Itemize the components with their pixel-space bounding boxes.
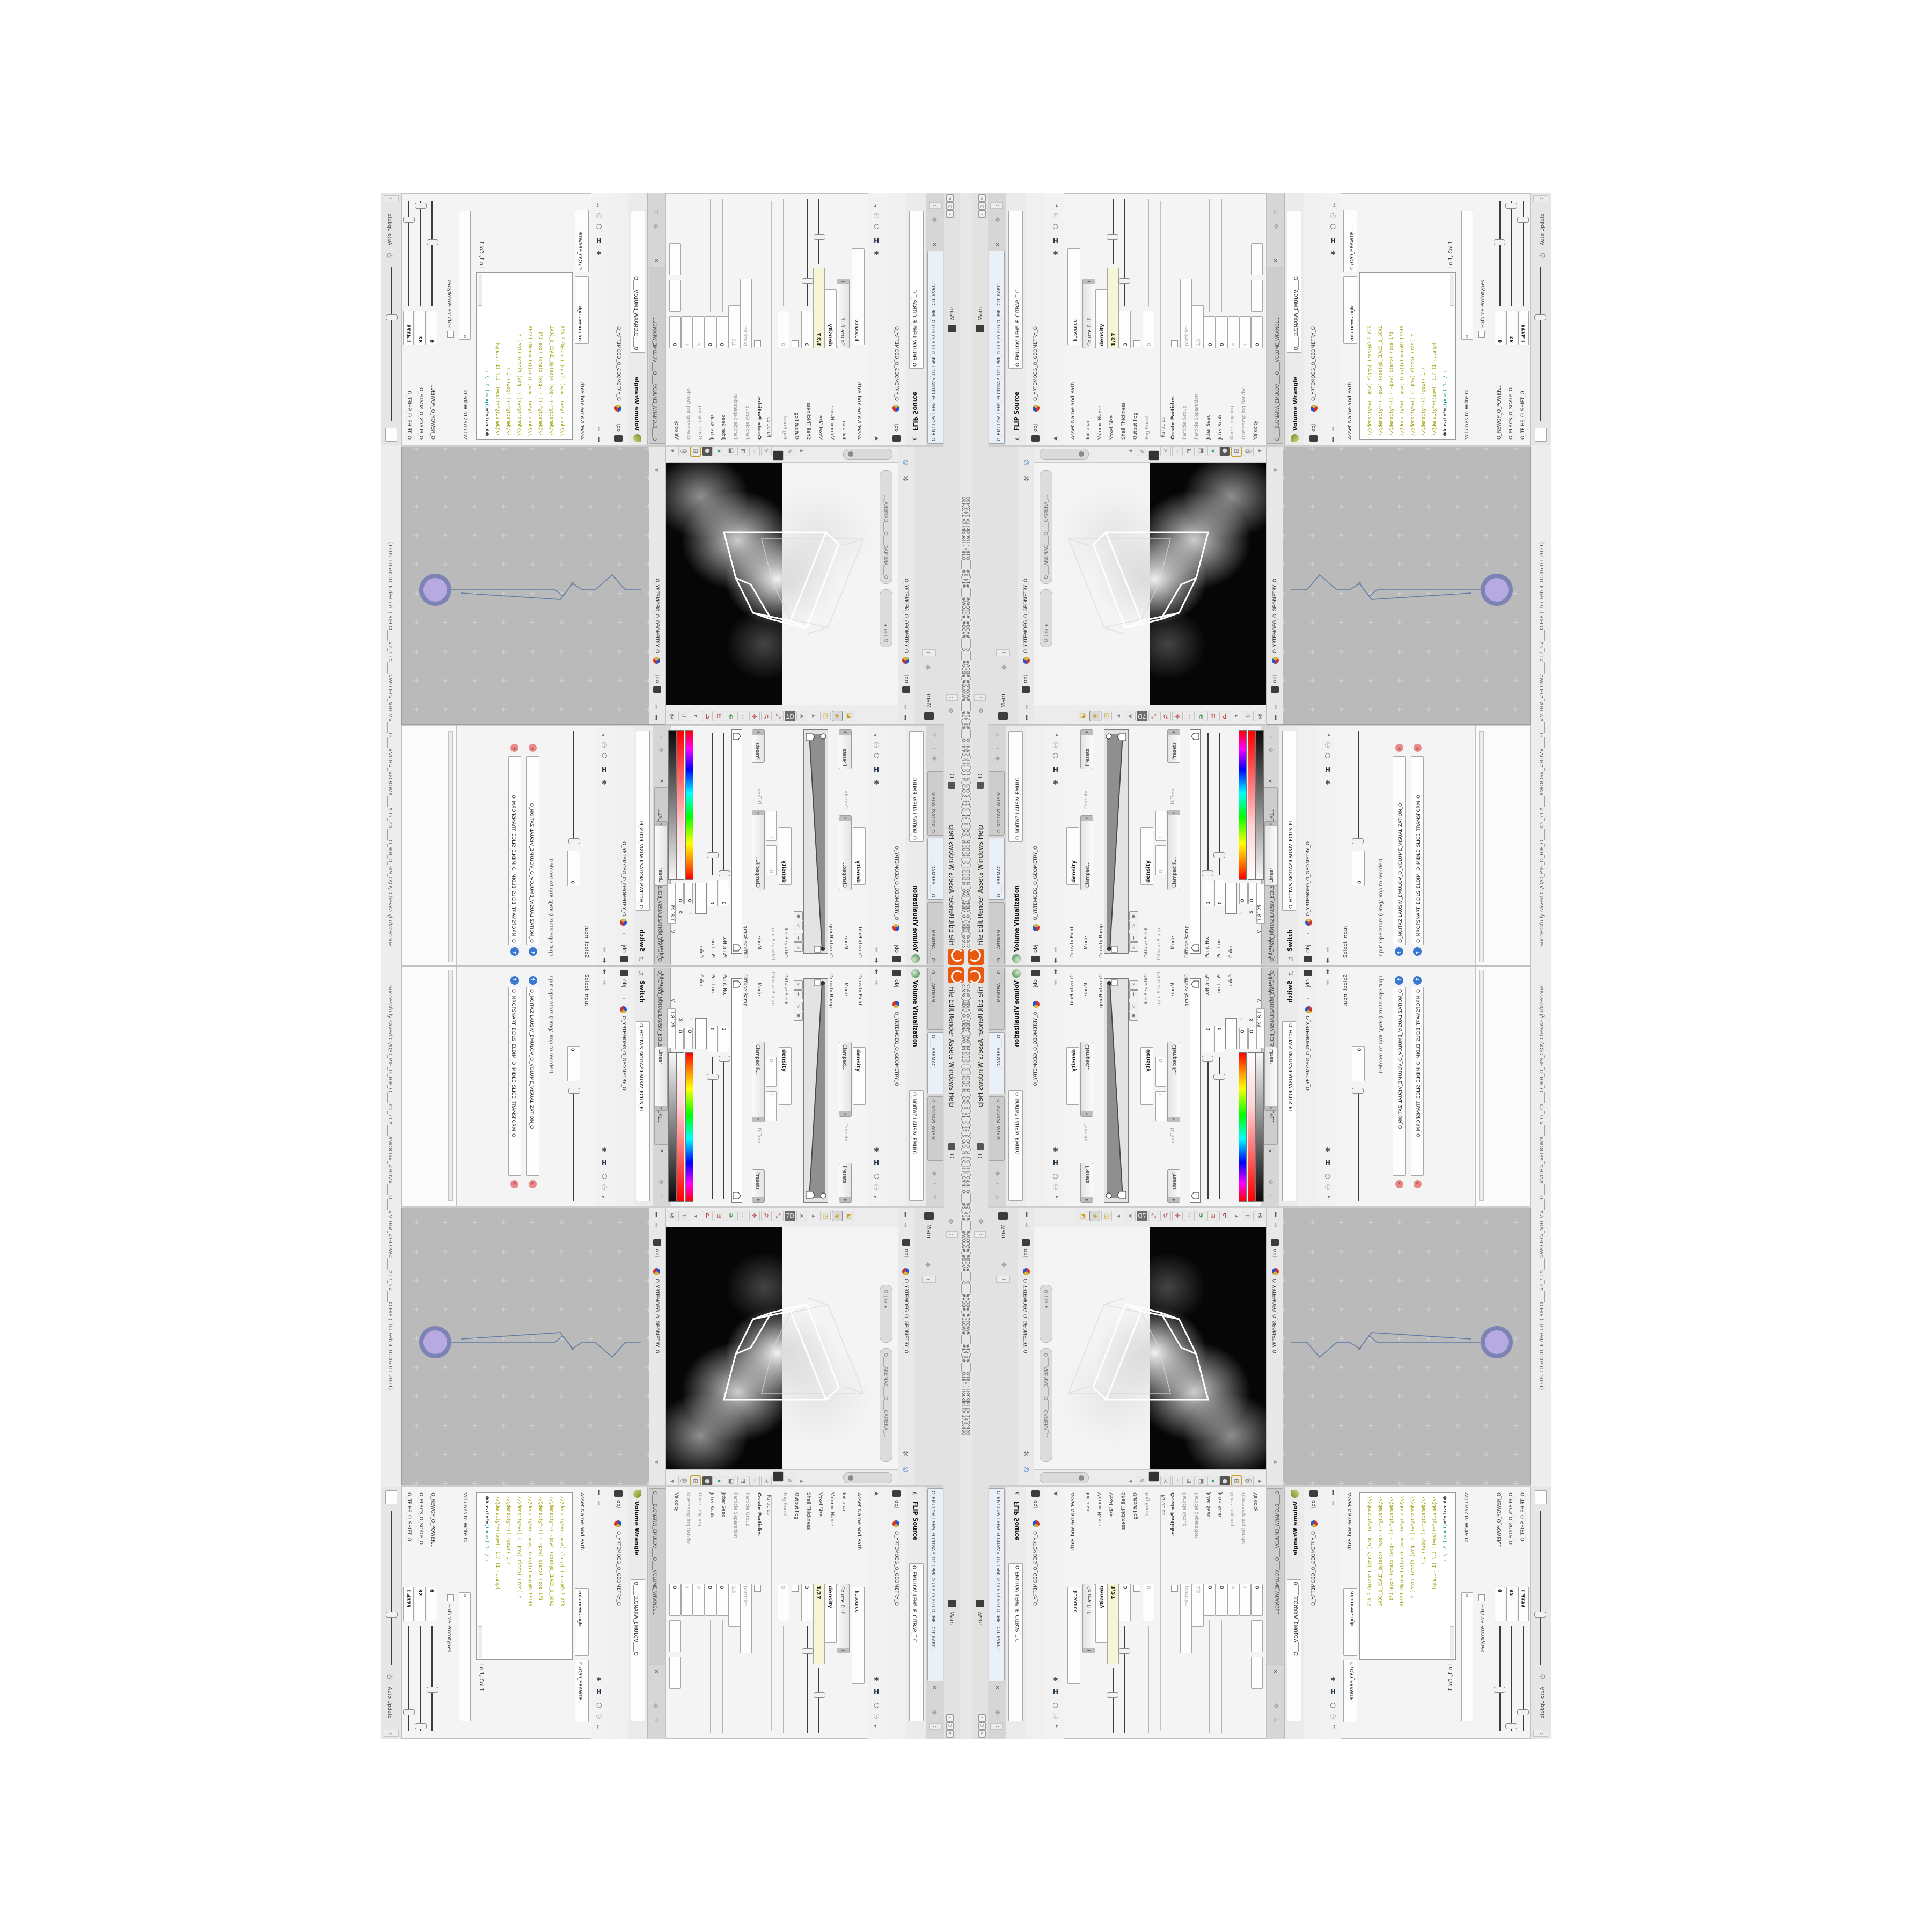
- scale-field[interactable]: 32: [415, 1587, 426, 1621]
- refresh-icon[interactable]: ⟳: [387, 1674, 393, 1681]
- select-input-slider[interactable]: [573, 1089, 574, 1201]
- diffuse-range-max[interactable]: 1: [766, 811, 777, 841]
- volumes-field[interactable]: *: [459, 211, 471, 340]
- scale-slider[interactable]: [1511, 1626, 1512, 1731]
- breadcrumb-path[interactable]: O_YRTEMOEG_O_GEOMETRY_O: [894, 731, 899, 920]
- shift-thumb[interactable]: [1517, 1709, 1529, 1715]
- code-vscroll[interactable]: [1450, 274, 1454, 306]
- down-arrow-icon[interactable]: ⬇: [1053, 946, 1058, 953]
- fog-boost-field[interactable]: 0: [778, 311, 789, 348]
- tripod-icon[interactable]: ⋏: [761, 1476, 772, 1487]
- pane-expand-icon[interactable]: ✥: [653, 1703, 658, 1709]
- ramp-add-icon[interactable]: +: [794, 933, 803, 942]
- breadcrumb-path[interactable]: O_YRTEMOEG_O_GEOMETRY_O: [894, 1012, 899, 1201]
- gear-icon[interactable]: ✱: [1053, 1147, 1058, 1153]
- breadcrumb-obj[interactable]: obj: [894, 417, 899, 432]
- velocity-field[interactable]: 0: [669, 1584, 681, 1616]
- auto-update-spinner[interactable]: ◂▸: [1533, 195, 1548, 202]
- switch-name-field[interactable]: O_HCTIWS_NOITAZILAUSIV_ECILS_EL: [636, 731, 650, 911]
- tab-mantra[interactable]: O____ARTNAM_...: [989, 902, 1005, 964]
- up-arrow-icon[interactable]: ⬆: [1330, 436, 1336, 443]
- info-icon[interactable]: ⓘ: [1053, 1185, 1058, 1191]
- pane-splitter[interactable]: ◂▸: [974, 1231, 986, 1238]
- desktop-layout-icon[interactable]: [977, 782, 984, 789]
- magnifier-icon[interactable]: ○: [1330, 1702, 1336, 1708]
- vex-code-editor[interactable]: //@density*=( -pow( clamp( (cos(@O_ELACS…: [476, 1492, 573, 1660]
- breadcrumb-obj[interactable]: obj: [1305, 936, 1311, 953]
- saturation-ramp[interactable]: [676, 730, 684, 880]
- breadcrumb-obj[interactable]: obj: [894, 936, 899, 953]
- playbar-thumb[interactable]: [1534, 1612, 1546, 1618]
- playbar-track[interactable]: [1540, 1511, 1541, 1665]
- diffuse-ramp-widget[interactable]: [1190, 978, 1201, 1203]
- pane-collapse-icon[interactable]: ◁: [660, 734, 663, 739]
- next-icon[interactable]: ▸: [1125, 445, 1136, 456]
- close-button[interactable]: ✕: [946, 194, 954, 202]
- up-arrow-icon[interactable]: ⬆: [903, 1211, 908, 1218]
- fog-boost-slider[interactable]: [1148, 1626, 1149, 1733]
- velocity-field[interactable]: 0: [1251, 1584, 1263, 1616]
- breadcrumb-obj[interactable]: obj: [1311, 1500, 1316, 1515]
- prev-icon[interactable]: ◂: [1231, 710, 1242, 721]
- magnifier-icon[interactable]: ○: [874, 753, 879, 759]
- value-ramp[interactable]: [1256, 1052, 1264, 1202]
- interpolation-dropdown[interactable]: Linear◂▸: [1264, 1046, 1277, 1111]
- pane-splitter[interactable]: ◂▸: [922, 1276, 936, 1283]
- shell-thickness-slider[interactable]: [807, 199, 808, 306]
- view-tool-button[interactable]: 7D: [1137, 711, 1147, 721]
- wrangle-name-field[interactable]: O____ELGNARW_EMULOV____O: [1287, 211, 1301, 353]
- anvil-icon[interactable]: ⚒: [1023, 1451, 1029, 1457]
- tab-camera[interactable]: O____AREMAC_...: [927, 838, 943, 900]
- flip-name-field[interactable]: O_EMULOV_LEH5_ELCITRAP_TICI: [909, 1563, 924, 1721]
- playbar-track[interactable]: [391, 1511, 392, 1665]
- viz-name-field[interactable]: O_NOITAZILAUSIV_EMULO: [1008, 1090, 1023, 1201]
- auto-update-label[interactable]: Auto Update: [1540, 1687, 1546, 1730]
- auto-update-label[interactable]: Auto Update: [386, 202, 392, 245]
- wrangle-pane-tab[interactable]: O____ELGNARW_EMULOV____O____VOLUME_WRANG…: [1267, 1488, 1283, 1665]
- ramp-delete-icon[interactable]: ✕: [794, 942, 803, 952]
- view-ortho-pill[interactable]: Ortho ▾: [1040, 1285, 1052, 1343]
- rotate-tool-icon[interactable]: ↻: [761, 711, 772, 721]
- menu-items[interactable]: File Edit Render Assets Windows Help: [948, 986, 955, 1137]
- switch-name-field[interactable]: O_HCTIWS_NOITAZILAUSIV_ECILS_EL: [1282, 731, 1296, 911]
- pose-icon[interactable]: Ꝑ: [702, 711, 713, 721]
- houdini-h-icon[interactable]: H: [1330, 1689, 1336, 1695]
- value-ramp[interactable]: [668, 730, 676, 880]
- select-objects-icon[interactable]: ✇: [1255, 711, 1265, 721]
- network-path[interactable]: O_YRTEMOEG_O_GEOMETRY_O: [1272, 1279, 1278, 1440]
- shade-selected-icon[interactable]: ◈: [1089, 711, 1100, 721]
- playbar-frame-field[interactable]: [385, 428, 397, 442]
- black-square-icon[interactable]: [773, 450, 784, 461]
- diffuse-presets-button[interactable]: Presets◂▸: [752, 729, 765, 763]
- code-vscroll[interactable]: [1450, 1626, 1454, 1658]
- eye-icon[interactable]: 👁: [1243, 445, 1254, 456]
- asset-field-2[interactable]: C:/O/O_ERAWTF...: [1343, 210, 1357, 272]
- jitter-scale-slider[interactable]: [710, 199, 711, 312]
- ramp-expand-icon[interactable]: ⊞: [794, 911, 803, 920]
- input-operator-row[interactable]: ➜ O_NOITAZILAUSIV_EMULOV_O_VOLUME_VISUAL…: [525, 976, 541, 1201]
- cursor-icon[interactable]: ➤: [1053, 435, 1058, 442]
- down-arrow-icon[interactable]: ⬇: [654, 704, 659, 710]
- fog-boost-slider[interactable]: [783, 199, 784, 306]
- prev-icon[interactable]: ◂: [1231, 1211, 1242, 1222]
- viewport-toolbar-bottom[interactable]: ◂👁⊞●➤◧⚃⁘⋏✎▸: [1034, 447, 1266, 463]
- gear-icon[interactable]: ✱: [874, 250, 879, 256]
- diffuse-range-max[interactable]: 1: [1155, 811, 1166, 841]
- create-particles-checkbox[interactable]: [1171, 1585, 1178, 1592]
- s-field[interactable]: 0: [1248, 883, 1257, 904]
- empty-pane-scrollbar[interactable]: [1479, 970, 1484, 1201]
- ramp-expand-icon[interactable]: ⊞: [1129, 1012, 1138, 1021]
- help-icon[interactable]: ?: [874, 201, 876, 207]
- jitter-seed-slider[interactable]: [1209, 199, 1210, 312]
- move-tool-icon[interactable]: ✥: [1172, 1211, 1183, 1221]
- ramp-add-icon[interactable]: +: [794, 990, 803, 999]
- voxel-size-field[interactable]: 1/27: [1107, 1584, 1119, 1664]
- magnifier-icon[interactable]: ○: [874, 1702, 879, 1708]
- up-arrow-icon[interactable]: ⬆: [874, 957, 879, 963]
- houdini-h-icon[interactable]: H: [874, 1160, 879, 1166]
- breadcrumb-path[interactable]: O_YRTEMOEG_O_GEOMETRY_O: [1033, 1012, 1038, 1201]
- s-field[interactable]: 0: [675, 1028, 684, 1049]
- info-icon[interactable]: ⓘ: [1053, 1715, 1058, 1720]
- shade-selected-icon[interactable]: ◈: [832, 1211, 843, 1221]
- breadcrumb-path[interactable]: O_YRTEMOEG_O_GEOMETRY_O: [1023, 1279, 1029, 1440]
- power-thumb[interactable]: [427, 239, 438, 245]
- prev-icon[interactable]: ◂: [667, 445, 677, 456]
- breadcrumb-obj[interactable]: obj: [616, 1500, 621, 1515]
- network-canvas[interactable]: [402, 446, 649, 724]
- pane-expand-icon[interactable]: ✥: [1001, 664, 1007, 670]
- switch-name-field[interactable]: O_HCTIWS_NOITAZILAUSIV_ECILS_EL: [1282, 1021, 1296, 1201]
- position-field[interactable]: 0: [707, 1026, 718, 1052]
- wrangle-name-field[interactable]: O____ELGNARW_EMULOV____O: [631, 211, 645, 353]
- h-field[interactable]: 0: [1239, 883, 1248, 904]
- jitter-seed-slider[interactable]: [722, 199, 723, 312]
- houdini-h-icon[interactable]: H: [602, 766, 607, 772]
- minimize-button[interactable]: –: [946, 1714, 954, 1722]
- info-icon[interactable]: ⓘ: [596, 1715, 602, 1720]
- select-input-field[interactable]: 0: [567, 851, 580, 886]
- create-particles-checkbox[interactable]: [754, 1585, 761, 1592]
- close-icon[interactable]: ✕: [1268, 1149, 1272, 1154]
- breadcrumb-obj[interactable]: obj: [1033, 936, 1038, 953]
- quadview-icon[interactable]: ⊞: [690, 446, 701, 457]
- breadcrumb-path[interactable]: O_YRTEMOEG_O_GEOMETRY_O: [1033, 731, 1038, 920]
- cursor-icon[interactable]: ➤: [1053, 1490, 1058, 1497]
- mode2-dropdown[interactable]: Clamped R...◂▸: [752, 810, 765, 890]
- density-ramp-widget[interactable]: [1104, 978, 1129, 1203]
- ramp-flip-icon[interactable]: ▽: [1129, 921, 1138, 930]
- info-icon[interactable]: ⓘ: [874, 212, 879, 217]
- magnifier-icon[interactable]: ○: [1053, 224, 1058, 230]
- power-thumb[interactable]: [1494, 1687, 1505, 1693]
- select-input-field[interactable]: 0: [1352, 1046, 1365, 1081]
- volumes-field[interactable]: *: [1461, 1592, 1473, 1721]
- help-icon[interactable]: ?: [602, 730, 604, 736]
- down-arrow-icon[interactable]: ⬇: [874, 946, 879, 953]
- down-arrow-icon[interactable]: ⬇: [596, 426, 602, 432]
- dice-icon[interactable]: ⚃: [737, 445, 748, 456]
- pane-splitter[interactable]: ◂▸: [922, 649, 936, 656]
- oversampling-field[interactable]: 2: [1227, 1584, 1239, 1616]
- help-icon[interactable]: ?: [1056, 730, 1058, 736]
- vex-code-editor[interactable]: //@density*=( -pow( clamp( (cos(@O_ELACS…: [1359, 1492, 1456, 1660]
- up-arrow-icon[interactable]: ⬆: [602, 969, 607, 975]
- shell-thickness-field[interactable]: 3: [1119, 1584, 1131, 1621]
- pane-collapse-icon[interactable]: ◁: [996, 1195, 1000, 1200]
- dark-toggle-icon[interactable]: ●: [702, 445, 713, 456]
- oversampling-bandwidth-field[interactable]: 1: [681, 316, 693, 348]
- diffuse-ramp-widget[interactable]: [1190, 729, 1201, 954]
- density-ramp-widget[interactable]: [803, 978, 828, 1203]
- axis-icon[interactable]: Ψ: [1196, 1211, 1206, 1221]
- up-arrow-icon[interactable]: ⬆: [1325, 969, 1330, 975]
- main-desktop-tab[interactable]: Main: [948, 1611, 955, 1641]
- viewport-toolbar-top[interactable]: ✇▱◂Ꝑ⊞Ψ⌇✥↻⤢7D➤▸◳◈◩: [1034, 706, 1266, 722]
- pane-expand-icon[interactable]: ✥: [658, 747, 664, 753]
- dot-grid-icon[interactable]: ⁘: [1172, 1476, 1183, 1487]
- density-presets-button[interactable]: Presets◂▸: [839, 729, 852, 769]
- pose-icon[interactable]: Ꝑ: [1219, 711, 1230, 721]
- diffuse-range-max[interactable]: 1: [766, 1091, 777, 1121]
- flip-asset-field[interactable]: flipsource: [852, 1587, 865, 1684]
- down-arrow-icon[interactable]: ⬇: [1273, 1222, 1278, 1228]
- particle-group-field[interactable]: particles: [740, 279, 752, 348]
- switch-name-field[interactable]: O_HCTIWS_NOITAZILAUSIV_ECILS_EL: [636, 1021, 650, 1201]
- velocity-field-3[interactable]: [669, 1657, 681, 1689]
- help-icon[interactable]: ?: [1328, 730, 1330, 736]
- scale-slider[interactable]: [420, 201, 421, 306]
- view-ortho-pill[interactable]: Ortho ▾: [1040, 589, 1052, 647]
- voxel-size-thumb[interactable]: [814, 234, 825, 240]
- network-path[interactable]: O_YRTEMOEG_O_GEOMETRY_O: [654, 492, 660, 653]
- magnifier-icon[interactable]: ○: [1053, 753, 1058, 759]
- point-no-field[interactable]: 1: [719, 1026, 729, 1052]
- s-field[interactable]: 0: [675, 883, 684, 904]
- breadcrumb-path[interactable]: O_YRTEMOEG_O_GEOMETRY_O: [894, 1531, 899, 1721]
- axis-icon[interactable]: Ψ: [726, 1211, 736, 1221]
- pane-expand-icon[interactable]: ✥: [932, 1709, 937, 1716]
- position-thumb[interactable]: [707, 852, 719, 858]
- info-icon[interactable]: ⓘ: [1330, 1715, 1336, 1720]
- diffuse-range-min[interactable]: 0: [1155, 1057, 1166, 1087]
- scale-tool-icon[interactable]: ⤢: [1148, 711, 1159, 721]
- gear-icon[interactable]: ✱: [602, 779, 607, 785]
- network-path[interactable]: O_YRTEMOEG_O_GEOMETRY_O: [654, 1279, 660, 1440]
- asset-field-2[interactable]: C:/O/O_ERAWTF...: [1343, 1660, 1357, 1722]
- remove-icon[interactable]: ✕: [529, 1180, 537, 1188]
- split-view-icon[interactable]: ◧: [726, 445, 736, 456]
- playbar-frame-field[interactable]: [1535, 428, 1547, 442]
- pane-expand-icon[interactable]: ✥: [925, 1262, 931, 1268]
- info-icon[interactable]: ⓘ: [874, 741, 879, 747]
- shade-mode-icon[interactable]: ◳: [1101, 1211, 1112, 1221]
- help-icon[interactable]: ?: [874, 1196, 876, 1202]
- pose-icon[interactable]: Ꝑ: [702, 1211, 713, 1221]
- viewport-toolbar-bottom[interactable]: ◂👁⊞●➤◧⚃⁘⋏✎▸: [666, 447, 898, 463]
- snapshot-pill[interactable]: [1040, 1472, 1089, 1483]
- shade-mode-icon[interactable]: ◳: [820, 1211, 831, 1221]
- interpolation-dropdown[interactable]: Linear◂▸: [655, 1046, 668, 1111]
- up-arrow-icon[interactable]: ⬆: [596, 436, 602, 443]
- down-arrow-icon[interactable]: ⬇: [1325, 946, 1330, 953]
- diffuse-presets-button[interactable]: Presets◂▸: [1167, 1169, 1180, 1203]
- point-no-thumb[interactable]: [719, 1056, 730, 1062]
- breadcrumb-obj[interactable]: obj: [903, 1249, 909, 1264]
- menu-items[interactable]: File Edit Render Assets Windows Help: [948, 795, 955, 946]
- pane-splitter[interactable]: ◂▸: [929, 1723, 942, 1730]
- info-icon[interactable]: ⓘ: [874, 1715, 879, 1720]
- position-thumb[interactable]: [707, 1074, 719, 1080]
- voxel-size-thumb[interactable]: [1107, 234, 1118, 240]
- hue-ramp[interactable]: [1239, 1052, 1247, 1202]
- viz-name-field[interactable]: O_NOITAZILAUSIV_EMULO: [909, 731, 924, 842]
- axis-icon[interactable]: Ψ: [726, 711, 736, 721]
- voxel-size-thumb[interactable]: [814, 1692, 825, 1698]
- diffuse-field-value[interactable]: density: [779, 827, 792, 885]
- viewport-toolbar-top[interactable]: ✇▱◂Ꝑ⊞Ψ⌇✥↻⤢7D➤▸◳◈◩: [666, 1210, 898, 1226]
- breadcrumb-obj[interactable]: obj: [1272, 668, 1278, 683]
- reorder-icon[interactable]: ➜: [1395, 947, 1403, 956]
- interpolation-dropdown[interactable]: Linear◂▸: [1264, 821, 1277, 885]
- help-icon[interactable]: ?: [1333, 201, 1336, 207]
- scale-slider[interactable]: [420, 1626, 421, 1731]
- flip-name-field[interactable]: O_EMULOV_LEH5_ELCITRAP_TICI: [1008, 1563, 1023, 1721]
- close-icon[interactable]: ✕: [932, 241, 936, 246]
- dot-grid-icon[interactable]: ⁘: [749, 1476, 760, 1487]
- remove-icon[interactable]: ✕: [510, 744, 518, 752]
- anvil-icon[interactable]: ⚒: [1023, 475, 1029, 481]
- help-icon[interactable]: ?: [1056, 1725, 1058, 1731]
- empty-pane-scrollbar[interactable]: [448, 970, 453, 1201]
- tab-camera[interactable]: O____AREMAC_...: [927, 1032, 943, 1094]
- houdini-h-icon[interactable]: H: [874, 766, 879, 772]
- pen-icon[interactable]: ✎: [1137, 445, 1147, 456]
- particle-group-field[interactable]: particles: [740, 1584, 752, 1653]
- scribble-icon[interactable]: ⌇: [1184, 711, 1195, 721]
- snapshot-pill[interactable]: [843, 449, 892, 460]
- velocity-field[interactable]: 0: [669, 316, 681, 348]
- dark-toggle-icon[interactable]: ●: [1219, 445, 1230, 456]
- diffuse-presets-button[interactable]: Presets◂▸: [1167, 729, 1180, 763]
- network-canvas[interactable]: [402, 1208, 649, 1486]
- next-icon[interactable]: ▸: [808, 710, 819, 721]
- scale-field[interactable]: 32: [1506, 311, 1517, 345]
- reorder-icon[interactable]: ➜: [529, 976, 537, 985]
- pane-float-icon[interactable]: ▢: [995, 1183, 1000, 1188]
- cursor-icon[interactable]: ➤: [874, 1490, 879, 1497]
- breadcrumb-path[interactable]: O_YRTEMOEG_O_GEOMETRY_O: [1306, 731, 1311, 916]
- reorder-icon[interactable]: ➜: [529, 947, 537, 956]
- menu-items[interactable]: File Edit Render Assets Windows Help: [977, 795, 984, 946]
- shell-thickness-slider[interactable]: [1124, 199, 1125, 306]
- prev-icon[interactable]: ◂: [1255, 445, 1265, 456]
- gear-icon[interactable]: ✱: [1053, 779, 1058, 785]
- help-icon[interactable]: ?: [1056, 1196, 1058, 1202]
- scale-tool-icon[interactable]: ⤢: [773, 711, 784, 721]
- pane-expand-icon[interactable]: ✥: [995, 1709, 1000, 1716]
- jitter-scale-slider[interactable]: [710, 1620, 711, 1733]
- desktop-layout-icon[interactable]: [977, 1143, 984, 1150]
- split-view-icon[interactable]: ◧: [1196, 1476, 1206, 1487]
- gear-icon[interactable]: ✱: [1325, 1147, 1330, 1153]
- initialize-dropdown[interactable]: Source FLIP◂▸: [1082, 1584, 1095, 1653]
- playbar-frame-field[interactable]: [385, 1490, 397, 1504]
- refresh-icon[interactable]: ⟳: [387, 251, 393, 258]
- pane-expand-icon[interactable]: ✥: [995, 216, 1000, 223]
- breadcrumb-path[interactable]: O_YRTEMOEG_O_GEOMETRY_O: [616, 211, 621, 401]
- diffuse-range-min[interactable]: 0: [1155, 845, 1166, 875]
- code-vscroll[interactable]: [478, 274, 482, 306]
- pane-expand-icon[interactable]: ✥: [925, 664, 931, 670]
- main-pane-tab[interactable]: Main: [1000, 678, 1007, 708]
- remove-icon[interactable]: ✕: [1414, 1180, 1422, 1188]
- select-input-slider[interactable]: [1358, 1089, 1359, 1201]
- vex-code-editor[interactable]: //@density*=( -pow( clamp( (cos(@O_ELACS…: [1359, 272, 1456, 440]
- input-operator-row[interactable]: ➜ O_NOITAZILAUSIV_EMULOV_O_VOLUME_VISUAL…: [1391, 976, 1407, 1201]
- point-no-field[interactable]: 1: [1203, 1026, 1213, 1052]
- pane-expand-icon[interactable]: ✥: [1274, 223, 1279, 229]
- voxel-size-field[interactable]: 1/27: [813, 268, 825, 348]
- next-icon[interactable]: ▸: [796, 445, 807, 456]
- input-operator-1[interactable]: O_NOITAZILAUSIV_EMULOV_O_VOLUME_VISUALIZ…: [1393, 987, 1406, 1176]
- magnifier-icon[interactable]: ○: [874, 1173, 879, 1179]
- view-ortho-pill[interactable]: Ortho ▾: [880, 589, 892, 647]
- power-thumb[interactable]: [1494, 239, 1505, 245]
- houdini-h-icon[interactable]: H: [596, 1689, 602, 1695]
- oversampling-field[interactable]: 2: [693, 1584, 705, 1616]
- up-arrow-icon[interactable]: ⬆: [1024, 714, 1029, 721]
- shell-thickness-field[interactable]: 3: [801, 311, 813, 348]
- scribble-icon[interactable]: ⌇: [737, 711, 748, 721]
- info-icon[interactable]: ⓘ: [1330, 212, 1336, 217]
- tripod-icon[interactable]: ⋏: [1160, 1476, 1171, 1487]
- breadcrumb-path[interactable]: O_YRTEMOEG_O_GEOMETRY_O: [1023, 492, 1029, 653]
- close-icon[interactable]: ✕: [660, 1149, 664, 1154]
- input-operator-2[interactable]: O_MROFSNART_ECILS_ELDIM_O_MIDLE_SLICE_TR…: [508, 987, 521, 1176]
- anvil-icon[interactable]: ⚒: [903, 1451, 909, 1457]
- density-presets-button[interactable]: Presets◂▸: [1080, 729, 1093, 769]
- breadcrumb-path[interactable]: O_YRTEMOEG_O_GEOMETRY_O: [1311, 1531, 1316, 1721]
- grid-snap-icon[interactable]: ⊞: [1207, 711, 1218, 721]
- magnifier-icon[interactable]: ○: [1325, 753, 1330, 759]
- reorder-icon[interactable]: ➜: [1413, 947, 1422, 956]
- houdini-h-icon[interactable]: H: [1325, 766, 1330, 772]
- output-fog-checkbox[interactable]: [792, 340, 799, 347]
- gear-icon[interactable]: ✱: [874, 779, 879, 785]
- voxel-size-slider[interactable]: [1113, 199, 1114, 264]
- close-icon[interactable]: ✕: [932, 1686, 936, 1691]
- shell-thickness-thumb[interactable]: [802, 278, 814, 284]
- main-desktop-tab[interactable]: Main: [948, 291, 955, 321]
- eye-icon[interactable]: 👁: [678, 1476, 689, 1487]
- houdini-h-icon[interactable]: H: [1053, 237, 1058, 243]
- target-icon[interactable]: ◎: [1024, 1466, 1029, 1472]
- shade-selected-icon[interactable]: ◈: [832, 711, 843, 721]
- up-arrow-icon[interactable]: ⬆: [1053, 969, 1058, 975]
- v-field[interactable]: 1.8125: [1256, 1008, 1265, 1048]
- voxel-size-slider[interactable]: [1113, 1668, 1114, 1733]
- enforce-prototypes-checkbox[interactable]: [447, 1594, 454, 1601]
- velocity-field[interactable]: 0: [1251, 316, 1263, 348]
- select-input-slider[interactable]: [573, 731, 574, 843]
- oversampling-field[interactable]: 2: [693, 316, 705, 348]
- select-geometry-icon[interactable]: ▱: [1243, 1211, 1254, 1221]
- volume-name-field[interactable]: density: [1095, 289, 1107, 348]
